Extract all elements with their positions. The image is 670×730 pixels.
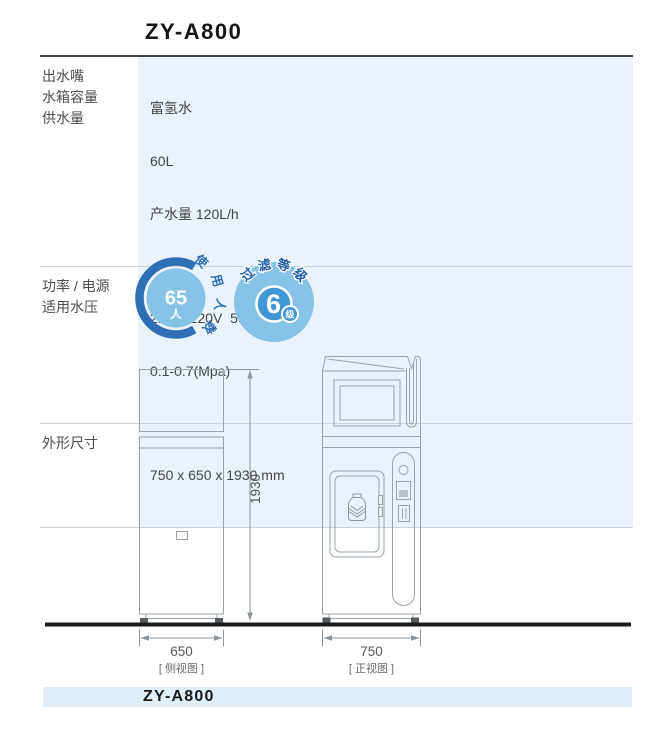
- filter-badge-value: 6: [266, 289, 281, 319]
- control-coin-slot: [399, 506, 410, 522]
- spec-label: 出水嘴: [42, 66, 138, 87]
- side-vent-detail: [177, 532, 188, 540]
- filter-badge-unit: 级: [284, 309, 295, 320]
- control-coin-slot-lines: [403, 509, 407, 519]
- height-dim-value: 1930: [248, 474, 263, 504]
- bottle-cap: [353, 494, 361, 498]
- side-view-drawing: [140, 370, 224, 623]
- spec-label: 水箱容量: [42, 87, 138, 108]
- spec-label: 供水量: [42, 108, 138, 129]
- side-view-caption: [ 侧视图 ]: [159, 661, 204, 675]
- water-bottle-icon: [349, 494, 366, 521]
- spec-values: 富氢水 60L 产水量 120L/h: [138, 57, 633, 266]
- page-title: ZY-A800: [145, 19, 242, 45]
- front-outline: [323, 357, 421, 615]
- door-hinge-bottom: [379, 508, 383, 517]
- side-base-rail: [146, 614, 217, 619]
- side-foot-left: [140, 618, 148, 623]
- spec-label: 适用水压: [42, 297, 138, 318]
- users-badge-value: 65: [165, 288, 187, 310]
- front-screen-inner: [340, 386, 394, 420]
- side-mid-band: [140, 437, 224, 448]
- technical-drawings: 1930 650 [ 侧视图 ] 750 [ 正视图 ]: [0, 348, 670, 683]
- front-foot-left: [323, 618, 331, 623]
- front-dim-value: 750: [360, 644, 383, 659]
- door-hinge-top: [379, 496, 383, 505]
- side-foot-right: [215, 618, 223, 623]
- spec-value: 60L: [150, 151, 633, 172]
- height-dim-arrow-top: [247, 370, 252, 379]
- front-foot-right: [411, 618, 419, 623]
- front-mid-band: [323, 437, 421, 448]
- side-dim-value: 650: [170, 644, 193, 659]
- front-screen-outer: [334, 380, 400, 426]
- front-base-rail: [329, 614, 413, 619]
- front-dim-arrow-right: [411, 635, 420, 640]
- front-dim-arrow-left: [324, 635, 333, 640]
- spec-label: 功率 / 电源: [42, 276, 138, 297]
- spec-labels: 出水嘴 水箱容量 供水量: [40, 57, 138, 266]
- front-top-fold-line: [328, 359, 405, 369]
- feature-badges: 65 人 使用人数 过滤等级 6 级: [125, 243, 325, 348]
- front-view-caption: [ 正视图 ]: [349, 661, 394, 675]
- footer-band: ZY-A800: [43, 687, 632, 707]
- side-dim-arrow-left: [141, 635, 150, 640]
- footer-model: ZY-A800: [143, 688, 215, 706]
- front-control-panel: [393, 453, 415, 606]
- control-indicator-circle: [399, 466, 408, 475]
- spec-value: 产水量 120L/h: [150, 204, 633, 225]
- side-top-box: [140, 370, 224, 432]
- spec-value: 富氢水: [150, 98, 633, 119]
- front-view-drawing: [323, 357, 421, 623]
- side-dim-arrow-right: [214, 635, 223, 640]
- height-dim-arrow-bottom: [247, 613, 252, 622]
- users-badge-unit: 人: [170, 307, 182, 321]
- filter-grade-badge: 过滤等级 6 级: [234, 256, 314, 342]
- control-card-slot-inner: [399, 490, 408, 497]
- users-badge: 65 人 使用人数: [139, 251, 229, 345]
- front-top-channel-inner: [410, 362, 414, 424]
- bottle-water-lines: [349, 506, 365, 517]
- spec-row-water: 出水嘴 水箱容量 供水量 富氢水 60L 产水量 120L/h: [40, 57, 633, 267]
